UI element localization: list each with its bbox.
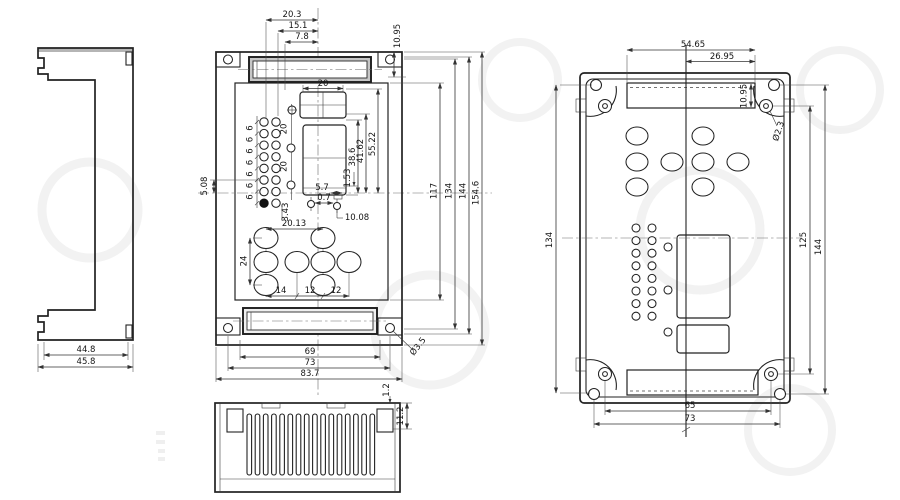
dim-side-inner-width: 44.8 — [77, 345, 96, 355]
drawing-canvas: 44.8 45.8 — [0, 0, 900, 500]
dim-low-20-13: 20.13 — [282, 219, 306, 229]
dim-top-right-10-95: 10.95 — [393, 24, 403, 48]
back-top-slot — [627, 83, 755, 108]
front-right-dims: 117 134 144 154.6 — [390, 52, 485, 345]
dim-low-12b: 12 — [331, 286, 342, 296]
back-lower-cutout — [677, 325, 729, 353]
dim-wall-1-2: 1.2 — [382, 383, 392, 397]
dim-pitch6: 6 — [246, 125, 256, 130]
dim-low-14: 14 — [276, 286, 287, 296]
dim-right-41-62: 41.62 — [356, 139, 366, 163]
dim-corner-hole-3-5: Ø3.5 — [407, 335, 428, 358]
back-big-holes — [626, 127, 749, 196]
dim-pitch6: 6 — [246, 183, 256, 188]
dim-bot-73: 73 — [305, 358, 316, 368]
dim-back-slot-10-95: 10.95 — [740, 84, 750, 108]
watermark — [42, 42, 880, 472]
corner-post-left — [227, 409, 243, 432]
dim-low-12: 12 — [305, 286, 316, 296]
dim-back-54-65: 54.65 — [681, 40, 705, 50]
dim-left-offset: 5.08 — [200, 177, 210, 196]
dim-right-55-22: 55.22 — [368, 132, 378, 156]
dim-mid-0-7: 0.7 — [317, 193, 331, 203]
dim-slot-width: 20 — [318, 79, 329, 89]
clip-notch-bottom — [126, 325, 132, 338]
bottom-view-dims: 1.2 11.2 — [382, 383, 412, 429]
front-pitch6-chain: 6 6 6 6 6 6 6 — [246, 116, 260, 208]
dim-pitch6: 6 — [246, 160, 256, 165]
dim-mid-5-7: 5.7 — [315, 183, 329, 193]
front-mid-hole-column: 20 20 — [280, 104, 298, 200]
dim-pitch20: 20 — [280, 161, 290, 172]
dim-back-125: 125 — [799, 232, 809, 248]
dim-back-65: 65 — [685, 401, 696, 411]
dim-bot-69: 69 — [305, 347, 316, 357]
dim-pitch6: 6 — [246, 171, 256, 176]
dim-pitch6: 6 — [246, 148, 256, 153]
fins — [247, 414, 375, 475]
front-view: 6 6 6 6 6 6 6 5.08 3.43 20 20 — [198, 8, 492, 396]
front-top-slot — [238, 57, 382, 82]
dim-side-134: 134 — [445, 183, 455, 199]
dim-side-144: 144 — [459, 183, 469, 199]
dim-back-134: 134 — [545, 232, 555, 248]
dim-side-117: 117 — [430, 183, 440, 199]
dim-back-26-95: 26.95 — [710, 52, 734, 62]
dim-top-20-3: 20.3 — [283, 10, 302, 20]
dim-side-outer-width: 45.8 — [77, 357, 96, 367]
dim-side-154-6: 154.6 — [472, 181, 482, 205]
dim-back-73: 73 — [685, 414, 696, 424]
dim-pitch6: 6 — [246, 194, 256, 199]
dim-pitch20: 20 — [280, 124, 290, 135]
front-body — [216, 52, 402, 345]
bottom-fin-view: 1.2 11.2 — [215, 383, 412, 492]
back-view: 54.65 26.95 10.95 Ø2.3 134 125 144 65 73 — [545, 40, 829, 437]
engineering-drawing: 44.8 45.8 — [0, 0, 900, 500]
dim-top-15-1: 15.1 — [289, 21, 308, 31]
side-profile-view: 44.8 45.8 — [38, 48, 133, 372]
dim-right-1-53: 1.53 — [343, 169, 353, 188]
front-bottom-slot — [233, 308, 387, 334]
dim-top-7-8: 7.8 — [295, 32, 309, 42]
dim-pitch6: 6 — [246, 137, 256, 142]
side-view-dimensions: 44.8 45.8 — [38, 342, 133, 372]
clip-notch-top — [126, 52, 132, 65]
dim-back-144: 144 — [814, 239, 824, 255]
front-left-hole-grid — [260, 118, 280, 208]
back-center-cutout — [677, 235, 730, 318]
dim-bot-83-7: 83.7 — [301, 369, 320, 379]
dim-mid-10-08: 10.08 — [345, 213, 369, 223]
dim-low-24: 24 — [240, 256, 250, 267]
corner-post-right — [377, 409, 393, 432]
dim-post-11-2: 11.2 — [396, 407, 406, 426]
